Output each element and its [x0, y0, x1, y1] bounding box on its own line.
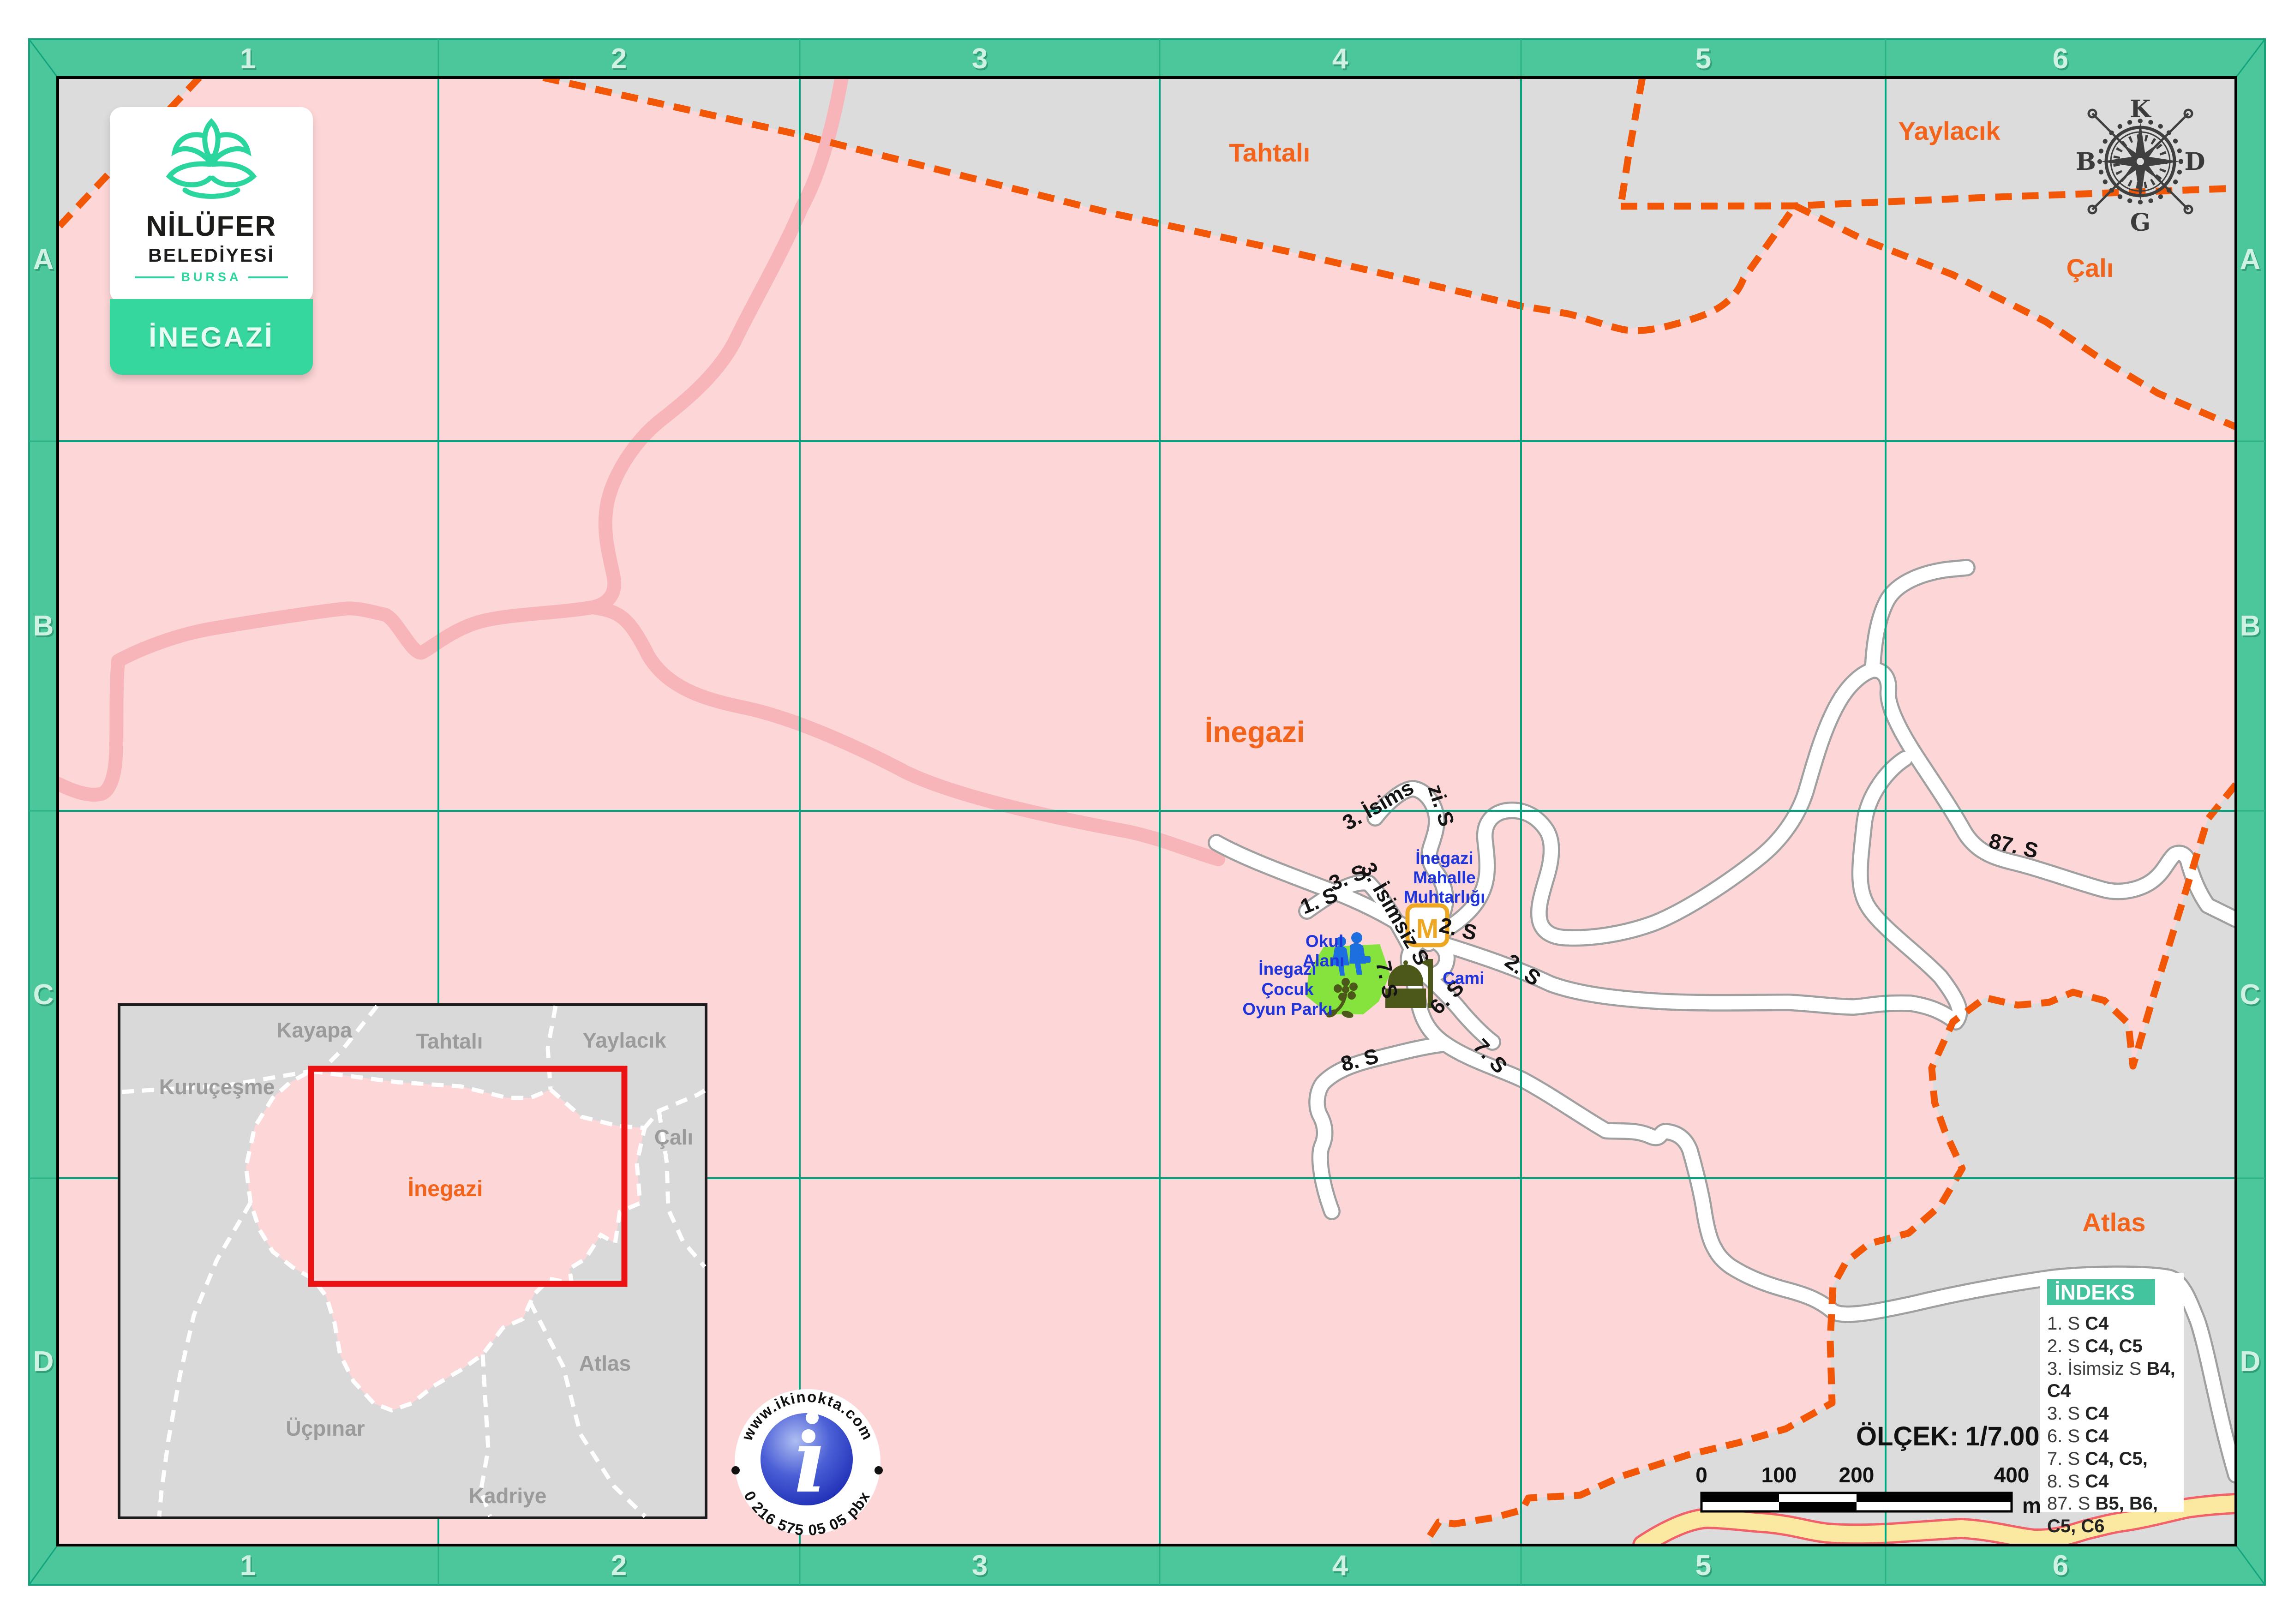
- grid-col-label: 1: [240, 1550, 256, 1582]
- grid-col-label: 3: [972, 43, 988, 75]
- scale-tick: 100: [1761, 1463, 1797, 1487]
- grid-col-label: 4: [1332, 43, 1348, 75]
- compass-north: K: [2130, 95, 2151, 123]
- park-label: İnegazi: [1258, 959, 1316, 978]
- compass-south: G: [2130, 209, 2150, 237]
- index-item: 87. S B5, B6, C5, C6: [2047, 1492, 2178, 1538]
- scale-text: ÖLÇEK:1/7.000: [1856, 1421, 2054, 1451]
- map-canvas: 1 2 3 4 5 6 1 2 3 4 5 6 A B C D A B C D: [0, 0, 2294, 1624]
- grid-col-label: 6: [2053, 1550, 2068, 1582]
- index-item: 2. S C4, C5: [2047, 1335, 2178, 1358]
- map-title-banner: İNEGAZİ: [110, 299, 313, 375]
- municipality-city: BURSA: [110, 270, 313, 284]
- inset-label-cali: Çalı: [654, 1125, 693, 1149]
- nilufer-lotus-icon: [158, 117, 264, 205]
- index-refs: C4, C5: [2085, 1336, 2143, 1356]
- inset-label-ucpinar: Üçpınar: [286, 1416, 365, 1440]
- inset-label-tahtali: Tahtalı: [416, 1029, 483, 1053]
- region-label-cali: Çalı: [2066, 253, 2114, 282]
- scale-seg: [1701, 1493, 1779, 1502]
- region-label-inegazi: İnegazi: [1205, 715, 1305, 749]
- ikinokta-dot: [802, 1429, 815, 1443]
- muhtarlik-label: İnegazi: [1415, 849, 1473, 868]
- map-page: 1 2 3 4 5 6 1 2 3 4 5 6 A B C D A B C D: [0, 0, 2294, 1624]
- grid-col-label: 3: [972, 1550, 988, 1582]
- grid-col-label: 1: [240, 43, 256, 75]
- scale-seg: [1857, 1493, 2012, 1502]
- region-label-yaylacik: Yaylacık: [1898, 116, 2001, 145]
- index-refs: C4: [2085, 1471, 2108, 1492]
- ikinokta-sep-dot: [731, 1466, 740, 1474]
- region-label-atlas: Atlas: [2083, 1208, 2146, 1237]
- index-refs: C4: [2085, 1313, 2108, 1334]
- ikinokta-dot: [806, 1411, 819, 1424]
- index-refs: C4: [2085, 1403, 2108, 1424]
- scale-tick: 0: [1695, 1463, 1707, 1487]
- grid-col-label: 2: [611, 1550, 627, 1582]
- inset-label-kurucesme: Kuruçeşme: [159, 1075, 275, 1099]
- scale-seg: [1779, 1502, 1857, 1511]
- inset-label-inegazi: İnegazi: [408, 1177, 483, 1201]
- index-item: 3. İsimsiz S B4, C4: [2047, 1358, 2178, 1403]
- index-refs: C4, C5,: [2085, 1449, 2148, 1469]
- grid-row-label: A: [33, 244, 54, 276]
- inset-label-kadriye: Kadriye: [469, 1484, 547, 1508]
- scale-unit: m: [2022, 1493, 2041, 1517]
- scale-label: ÖLÇEK:: [1856, 1421, 1959, 1451]
- grid-col-label: 6: [2053, 43, 2068, 75]
- park-label: Çocuk: [1261, 980, 1314, 999]
- compass-west: B: [2076, 148, 2096, 176]
- index-items: 1. S C4 2. S C4, C5 3. İsimsiz S B4, C4 …: [2040, 1305, 2184, 1538]
- muhtarlik-label: Mahalle: [1413, 868, 1476, 887]
- map-body: M 3. İsims zi. S 3. S 3. İsimsiz S 1. S …: [58, 78, 2236, 1545]
- index-item: 7. S C4, C5,: [2047, 1448, 2178, 1470]
- municipality-name: NİLÜFER: [110, 210, 313, 243]
- scale-tick: 200: [1839, 1463, 1875, 1487]
- inset-map: Kayapa Tahtalı Yaylacık Kuruçeşme Çalı İ…: [119, 1005, 706, 1518]
- grid-row-label: D: [2240, 1346, 2261, 1378]
- compass-east: D: [2184, 148, 2205, 176]
- grid-row-label: B: [2240, 610, 2261, 642]
- index-refs: C4: [2085, 1426, 2108, 1446]
- municipality-logo-card: NİLÜFER BELEDİYESİ BURSA: [110, 107, 313, 303]
- muhtarlik-label: Muhtarlığı: [1404, 887, 1485, 906]
- index-street: 6. S: [2047, 1426, 2080, 1446]
- index-street: 3. S: [2047, 1403, 2080, 1424]
- index-street: 7. S: [2047, 1449, 2080, 1469]
- grid-row-label: C: [2240, 979, 2261, 1011]
- grid-col-label: 2: [611, 43, 627, 75]
- ikinokta-i: ı: [792, 1409, 825, 1512]
- index-street: 1. S: [2047, 1313, 2080, 1334]
- index-street: 87. S: [2047, 1493, 2090, 1514]
- municipality-sub: BELEDİYESİ: [110, 245, 313, 266]
- inset-label-atlas: Atlas: [579, 1351, 631, 1375]
- grid-col-label: 5: [1695, 43, 1711, 75]
- street-index-box: İNDEKS 1. S C4 2. S C4, C5 3. İsimsiz S …: [2040, 1273, 2184, 1512]
- inset-label-yaylacik: Yaylacık: [582, 1028, 666, 1052]
- index-item: 1. S C4: [2047, 1312, 2178, 1335]
- index-street: 8. S: [2047, 1471, 2080, 1492]
- index-street: 2. S: [2047, 1336, 2080, 1356]
- index-item: 3. S C4: [2047, 1402, 2178, 1425]
- grid-col-label: 4: [1332, 1550, 1348, 1582]
- grid-row-label: D: [33, 1346, 54, 1378]
- grid-row-label: C: [33, 979, 54, 1011]
- okul-label: Okul: [1306, 932, 1343, 951]
- index-item: 8. S C4: [2047, 1470, 2178, 1493]
- grid-col-label: 5: [1695, 1550, 1711, 1582]
- index-title: İNDEKS: [2047, 1279, 2155, 1305]
- index-street: 3. İsimsiz S: [2047, 1359, 2141, 1379]
- grid-row-label: B: [33, 610, 54, 642]
- park-label: Oyun Parkı: [1242, 1000, 1332, 1019]
- scale-tick: 400: [1994, 1463, 2030, 1487]
- cami-label: Cami: [1443, 969, 1484, 988]
- grid-row-label: A: [2240, 244, 2261, 276]
- ikinokta-sep-dot: [874, 1466, 883, 1474]
- index-item: 6. S C4: [2047, 1425, 2178, 1448]
- inset-label-kayapa: Kayapa: [276, 1018, 352, 1042]
- region-label-tahtali: Tahtalı: [1229, 138, 1310, 167]
